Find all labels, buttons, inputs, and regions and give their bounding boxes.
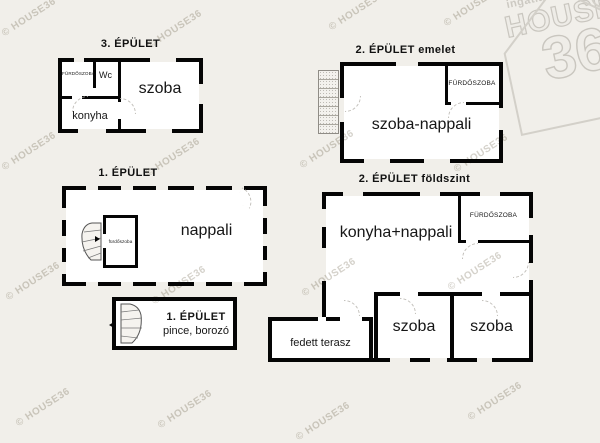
watermark: © HOUSE36 bbox=[466, 380, 524, 423]
room-label-szoba2: szoba bbox=[454, 318, 529, 336]
window-gap bbox=[62, 236, 66, 248]
wall bbox=[62, 96, 72, 99]
stairs-icon bbox=[118, 303, 145, 345]
building1-bathroom-outline: fürdőszoba bbox=[103, 215, 138, 268]
wall bbox=[445, 102, 451, 105]
room-label-nappali: nappali bbox=[154, 222, 259, 240]
window-gap bbox=[74, 58, 84, 62]
cellar-subtitle: pince, borozó bbox=[154, 325, 238, 337]
wall bbox=[466, 102, 499, 105]
window-gap bbox=[480, 192, 500, 196]
window-gap bbox=[390, 358, 410, 362]
building3-outline: FÜRDŐSZOBA Wc szoba konyha bbox=[58, 58, 203, 133]
window-gap bbox=[364, 159, 390, 163]
building2-ground-title: 2. ÉPÜLET földszint bbox=[322, 173, 507, 185]
window-gap bbox=[396, 62, 418, 66]
window-gap bbox=[420, 192, 440, 196]
window-gap bbox=[477, 358, 492, 362]
watermark: © HOUSE36 bbox=[14, 386, 72, 429]
window-gap bbox=[194, 186, 206, 190]
building3-title: 3. ÉPÜLET bbox=[58, 38, 203, 50]
window-gap bbox=[146, 129, 172, 133]
window-gap bbox=[529, 218, 533, 235]
window-gap bbox=[343, 192, 363, 196]
window-gap bbox=[424, 159, 450, 163]
room-label-bathroom: fürdőszoba bbox=[106, 239, 135, 244]
room-label-szoba: szoba bbox=[121, 80, 199, 98]
room-label-bathroom: FÜRDŐSZOBA bbox=[62, 71, 93, 76]
room-label-wc: Wc bbox=[95, 70, 116, 80]
watermark: © HOUSE36 bbox=[4, 260, 62, 303]
window-gap bbox=[232, 282, 244, 286]
window-gap bbox=[150, 58, 176, 62]
stairs-direction-arrow bbox=[95, 236, 100, 242]
building1-title: 1. ÉPÜLET bbox=[62, 167, 194, 179]
watermark: © HOUSE36 bbox=[0, 0, 58, 39]
window-gap bbox=[86, 186, 98, 190]
window-gap bbox=[318, 317, 326, 321]
window-gap bbox=[263, 234, 267, 246]
window-gap bbox=[86, 282, 98, 286]
watermark: © HOUSE36 bbox=[0, 130, 58, 173]
window-gap bbox=[199, 84, 203, 104]
room-label-konyha-nappali: konyha+nappali bbox=[328, 224, 464, 242]
room-label-szoba1: szoba bbox=[378, 318, 450, 336]
room-label-terasz: fedett terasz bbox=[272, 337, 369, 349]
wall bbox=[118, 119, 121, 129]
window-gap bbox=[78, 129, 106, 133]
window-gap bbox=[263, 260, 267, 272]
building2-upper-title: 2. ÉPÜLET emelet bbox=[323, 44, 488, 56]
stairs-direction-arrow bbox=[109, 322, 114, 328]
window-gap bbox=[62, 262, 66, 274]
room-label-bathroom: FÜRDŐSZOBA bbox=[445, 80, 499, 87]
window-gap bbox=[322, 209, 326, 227]
window-gap bbox=[156, 186, 168, 190]
window-gap bbox=[499, 108, 503, 130]
door-gap bbox=[340, 317, 362, 321]
window-gap bbox=[62, 208, 66, 220]
watermark: © HOUSE36 bbox=[156, 388, 214, 431]
window-gap bbox=[194, 282, 206, 286]
stairs-icon bbox=[79, 222, 103, 262]
window-gap bbox=[430, 358, 447, 362]
floor-plan: ingatlanhálózat HOUSE 36 3. ÉPÜLET FÜRDŐ… bbox=[0, 0, 600, 437]
wall bbox=[500, 292, 529, 296]
window-gap bbox=[121, 186, 133, 190]
terrace-outline: fedett terasz bbox=[268, 317, 373, 362]
window-gap bbox=[156, 282, 168, 286]
watermark: © HOUSE36 bbox=[327, 0, 385, 33]
door-gap bbox=[529, 263, 533, 280]
wall bbox=[478, 240, 529, 243]
room-label-szoba-nappali: szoba-nappali bbox=[344, 116, 499, 134]
stairs-icon bbox=[318, 70, 339, 134]
room-label-bathroom: FÜRDŐSZOBA bbox=[458, 212, 529, 219]
window-gap bbox=[121, 282, 133, 286]
window-gap bbox=[263, 206, 267, 218]
house36-logo: ingatlanhálózat HOUSE 36 bbox=[488, 0, 600, 99]
cellar-title: 1. ÉPÜLET bbox=[154, 311, 238, 323]
